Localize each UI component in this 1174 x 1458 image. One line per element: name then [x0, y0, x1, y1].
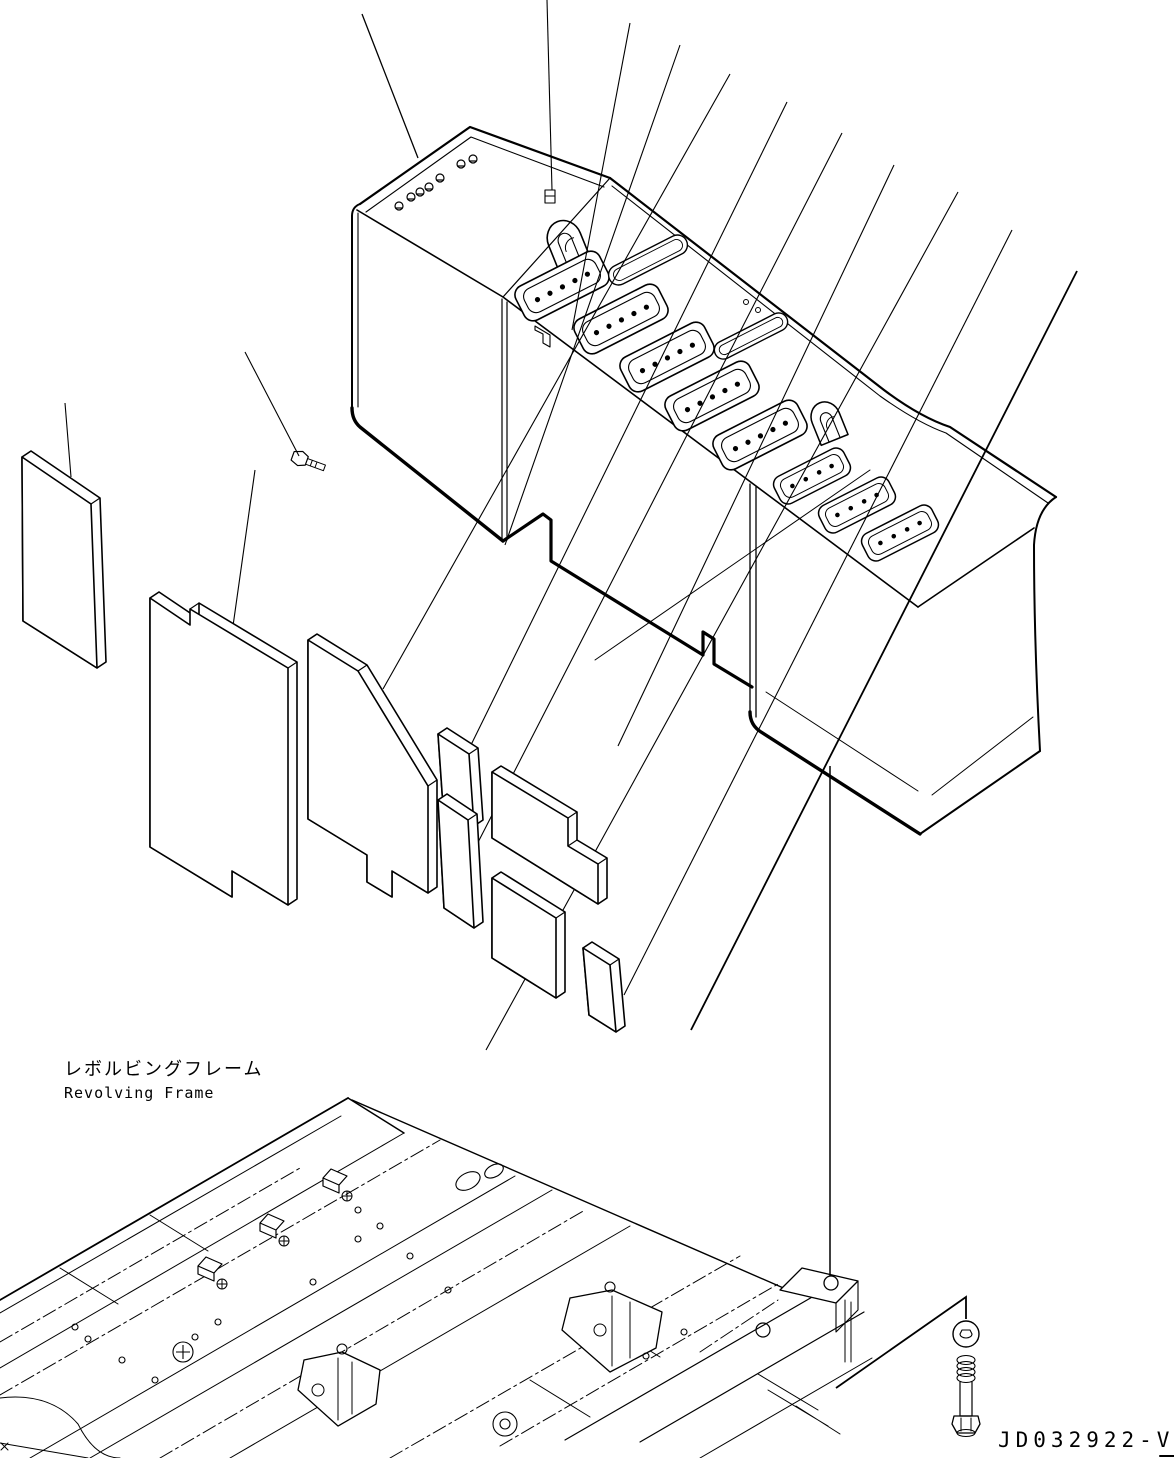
foam-pad-b — [150, 592, 297, 905]
revolving-frame-label-en: Revolving Frame — [64, 1084, 214, 1102]
drawing-number: JD032922-V — [998, 1428, 1174, 1452]
foam-pads — [22, 451, 625, 1032]
mounting-bolt — [952, 1356, 980, 1437]
center-recess-panel — [503, 514, 752, 687]
parts-diagram-page: レボルビングフレーム Revolving Frame JD032922-V — [0, 0, 1174, 1458]
lift-handle — [806, 397, 848, 445]
foam-pad-g — [492, 872, 565, 998]
revolving-frame-label-ja: レボルビングフレーム — [64, 1059, 263, 1080]
revolving-frame — [0, 1098, 872, 1458]
foam-pad-a — [22, 451, 106, 668]
cover-assembly — [352, 127, 1056, 834]
foam-pad-h — [583, 942, 625, 1032]
diagram-canvas: レボルビングフレーム Revolving Frame JD032922-V — [0, 0, 1174, 1458]
frame-bracket — [298, 1344, 380, 1426]
side-bolt — [290, 449, 327, 475]
frame-mount-blocks — [198, 1169, 352, 1289]
frame-corner-block — [700, 1268, 858, 1434]
foam-pad-e — [438, 794, 483, 928]
foam-pad-c — [308, 634, 437, 897]
washer — [953, 1321, 979, 1347]
